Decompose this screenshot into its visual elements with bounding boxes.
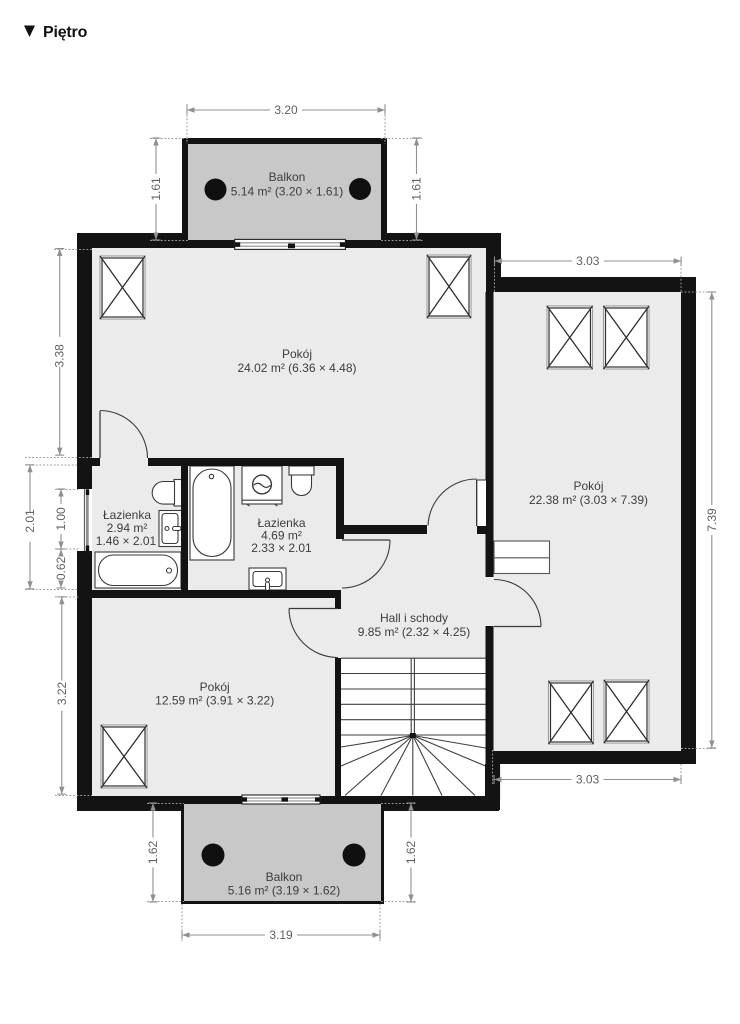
svg-text:3.20: 3.20	[274, 103, 298, 117]
svg-text:1.61: 1.61	[149, 177, 163, 201]
svg-text:7.39: 7.39	[705, 508, 719, 532]
svg-text:3.38: 3.38	[53, 344, 67, 368]
svg-text:3.03: 3.03	[576, 254, 600, 268]
svg-text:9.85 m² (2.32 × 4.25): 9.85 m² (2.32 × 4.25)	[358, 625, 470, 639]
svg-text:5.16 m² (3.19 × 1.62): 5.16 m² (3.19 × 1.62)	[228, 884, 340, 898]
svg-text:2.94 m²: 2.94 m²	[107, 521, 148, 535]
svg-text:5.14 m² (3.20 × 1.61): 5.14 m² (3.20 × 1.61)	[231, 185, 343, 199]
svg-text:3.19: 3.19	[269, 928, 293, 942]
svg-text:Balkon: Balkon	[266, 870, 303, 884]
svg-text:24.02 m² (6.36 × 4.48): 24.02 m² (6.36 × 4.48)	[237, 361, 356, 375]
svg-text:2.33 × 2.01: 2.33 × 2.01	[251, 541, 312, 555]
svg-text:1.61: 1.61	[410, 177, 424, 201]
svg-text:Pokój: Pokój	[200, 680, 230, 694]
svg-text:3.22: 3.22	[55, 681, 69, 705]
svg-text:Balkon: Balkon	[269, 170, 306, 184]
svg-text:2.01: 2.01	[23, 509, 37, 533]
svg-text:Piętro: Piętro	[43, 24, 88, 41]
svg-text:Pokój: Pokój	[282, 347, 312, 361]
svg-text:0.62: 0.62	[54, 556, 68, 580]
svg-text:1.62: 1.62	[146, 840, 160, 864]
svg-text:22.38 m² (3.03 × 7.39): 22.38 m² (3.03 × 7.39)	[529, 493, 648, 507]
svg-text:3.03: 3.03	[576, 773, 600, 787]
svg-text:1.62: 1.62	[404, 840, 418, 864]
svg-text:1.00: 1.00	[54, 507, 68, 531]
svg-text:Hall i schody: Hall i schody	[380, 611, 448, 625]
svg-text:Łazienka: Łazienka	[103, 508, 151, 522]
svg-text:12.59 m² (3.91 × 3.22): 12.59 m² (3.91 × 3.22)	[155, 694, 274, 708]
svg-text:Pokój: Pokój	[573, 479, 603, 493]
svg-text:1.46 × 2.01: 1.46 × 2.01	[96, 534, 157, 548]
